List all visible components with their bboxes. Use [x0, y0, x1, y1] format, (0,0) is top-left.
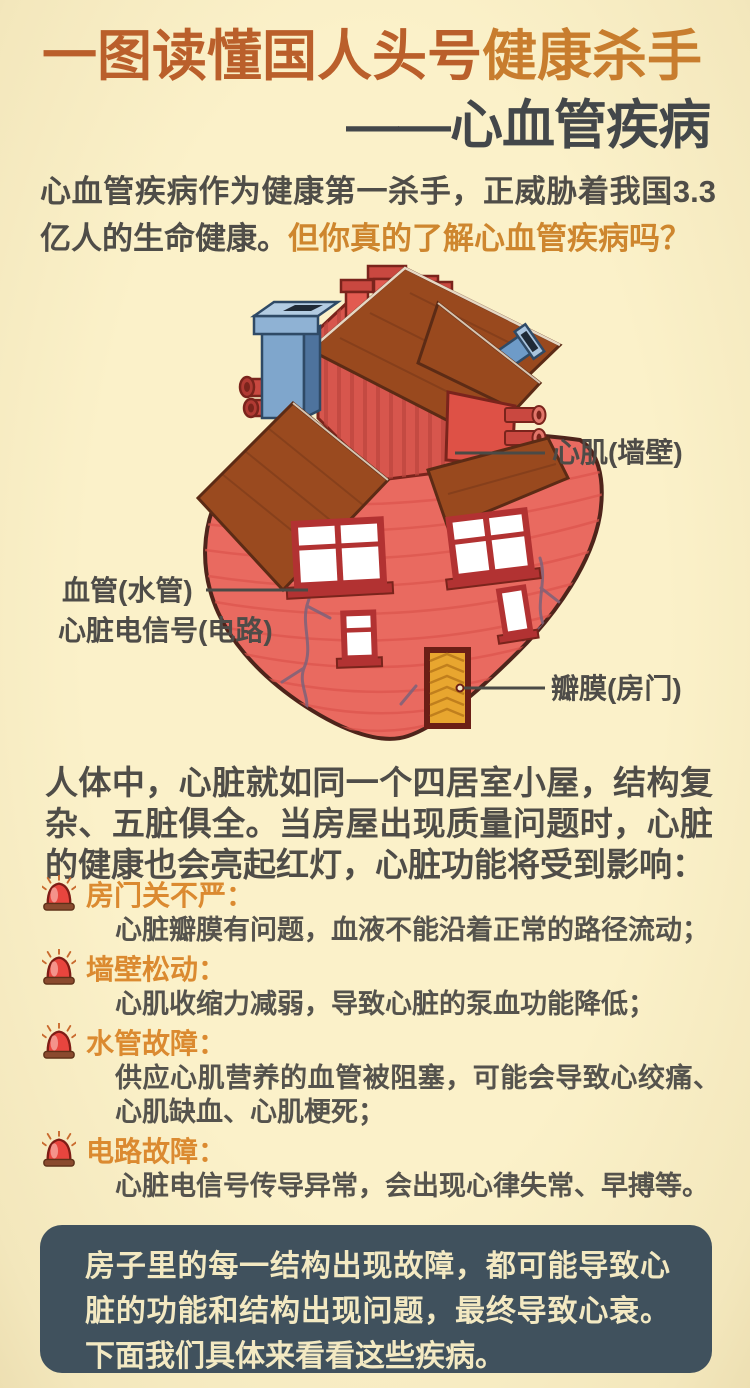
issue-title: 电路故障：	[86, 1130, 226, 1170]
issue-title: 墙壁松动：	[86, 948, 226, 988]
right-double-window	[439, 510, 541, 590]
siren-icon	[42, 875, 76, 913]
issue-item-wall: 墙壁松动： 心肌收缩力减弱，导致心脏的泵血功能降低；	[42, 950, 720, 1021]
issue-title: 水管故障：	[86, 1022, 226, 1062]
title-part2: 健康杀手	[482, 25, 702, 87]
label-electrical-signal: 心脏电信号(电路)	[58, 614, 273, 648]
siren-icon	[42, 1131, 76, 1169]
issue-desc: 供应心肌营养的血管被阻塞，可能会导致心绞痛、心肌缺血、心肌梗死；	[115, 1061, 720, 1129]
door-knob	[457, 685, 464, 692]
issue-title: 房门关不严：	[86, 874, 254, 914]
page-subtitle: ——心血管疾病	[346, 95, 710, 157]
front-double-window	[283, 519, 393, 598]
issue-item-door: 房门关不严： 心脏瓣膜有问题，血液不能沿着正常的路径流动；	[42, 876, 720, 947]
valve-door	[427, 650, 468, 726]
title-part1: 一图读懂国人头号	[42, 25, 482, 87]
issue-head: 水管故障：	[42, 1024, 720, 1059]
infographic-page: 一图读懂国人头号健康杀手 ——心血管疾病 心血管疾病作为健康第一杀手，正威胁着我…	[0, 0, 750, 1388]
issues-list: 房门关不严： 心脏瓣膜有问题，血液不能沿着正常的路径流动； 墙壁松动： 心肌收缩…	[42, 876, 720, 1206]
intro-paragraph: 心血管疾病作为健康第一杀手，正威胁着我国3.3亿人的生命健康。但你真的了解心血管…	[40, 168, 716, 262]
issue-desc: 心脏瓣膜有问题，血液不能沿着正常的路径流动；	[115, 913, 720, 947]
issue-desc: 心脏电信号传导异常，会出现心律失常、早搏等。	[115, 1169, 720, 1203]
label-myocardium: 心肌(墙壁)	[552, 436, 683, 470]
issue-item-pipe: 水管故障： 供应心肌营养的血管被阻塞，可能会导致心绞痛、心肌缺血、心肌梗死；	[42, 1024, 720, 1129]
issue-desc: 心肌收缩力减弱，导致心脏的泵血功能降低；	[115, 987, 720, 1021]
issue-head: 电路故障：	[42, 1132, 720, 1167]
body-paragraph: 人体中，心脏就如同一个四居室小屋，结构复杂、五脏俱全。当房屋出现质量问题时，心脏…	[45, 762, 713, 885]
intro-highlight-text: 但你真的了解心血管疾病吗？	[288, 221, 691, 256]
issue-head: 墙壁松动：	[42, 950, 720, 985]
siren-icon	[42, 949, 76, 987]
small-left-window	[335, 612, 382, 668]
label-blood-vessel: 血管(水管)	[62, 574, 193, 608]
siren-icon	[42, 1023, 76, 1061]
issue-head: 房门关不严：	[42, 876, 720, 911]
page-title: 一图读懂国人头号健康杀手	[42, 24, 702, 88]
label-valve: 瓣膜(房门)	[551, 672, 682, 706]
issue-item-circuit: 电路故障： 心脏电信号传导异常，会出现心律失常、早搏等。	[42, 1132, 720, 1203]
footer-text: 房子里的每一结构出现故障，都可能导致心脏的功能和结构出现问题，最终导致心衰。下面…	[85, 1244, 670, 1379]
footer-note: 房子里的每一结构出现故障，都可能导致心脏的功能和结构出现问题，最终导致心衰。下面…	[40, 1225, 712, 1373]
